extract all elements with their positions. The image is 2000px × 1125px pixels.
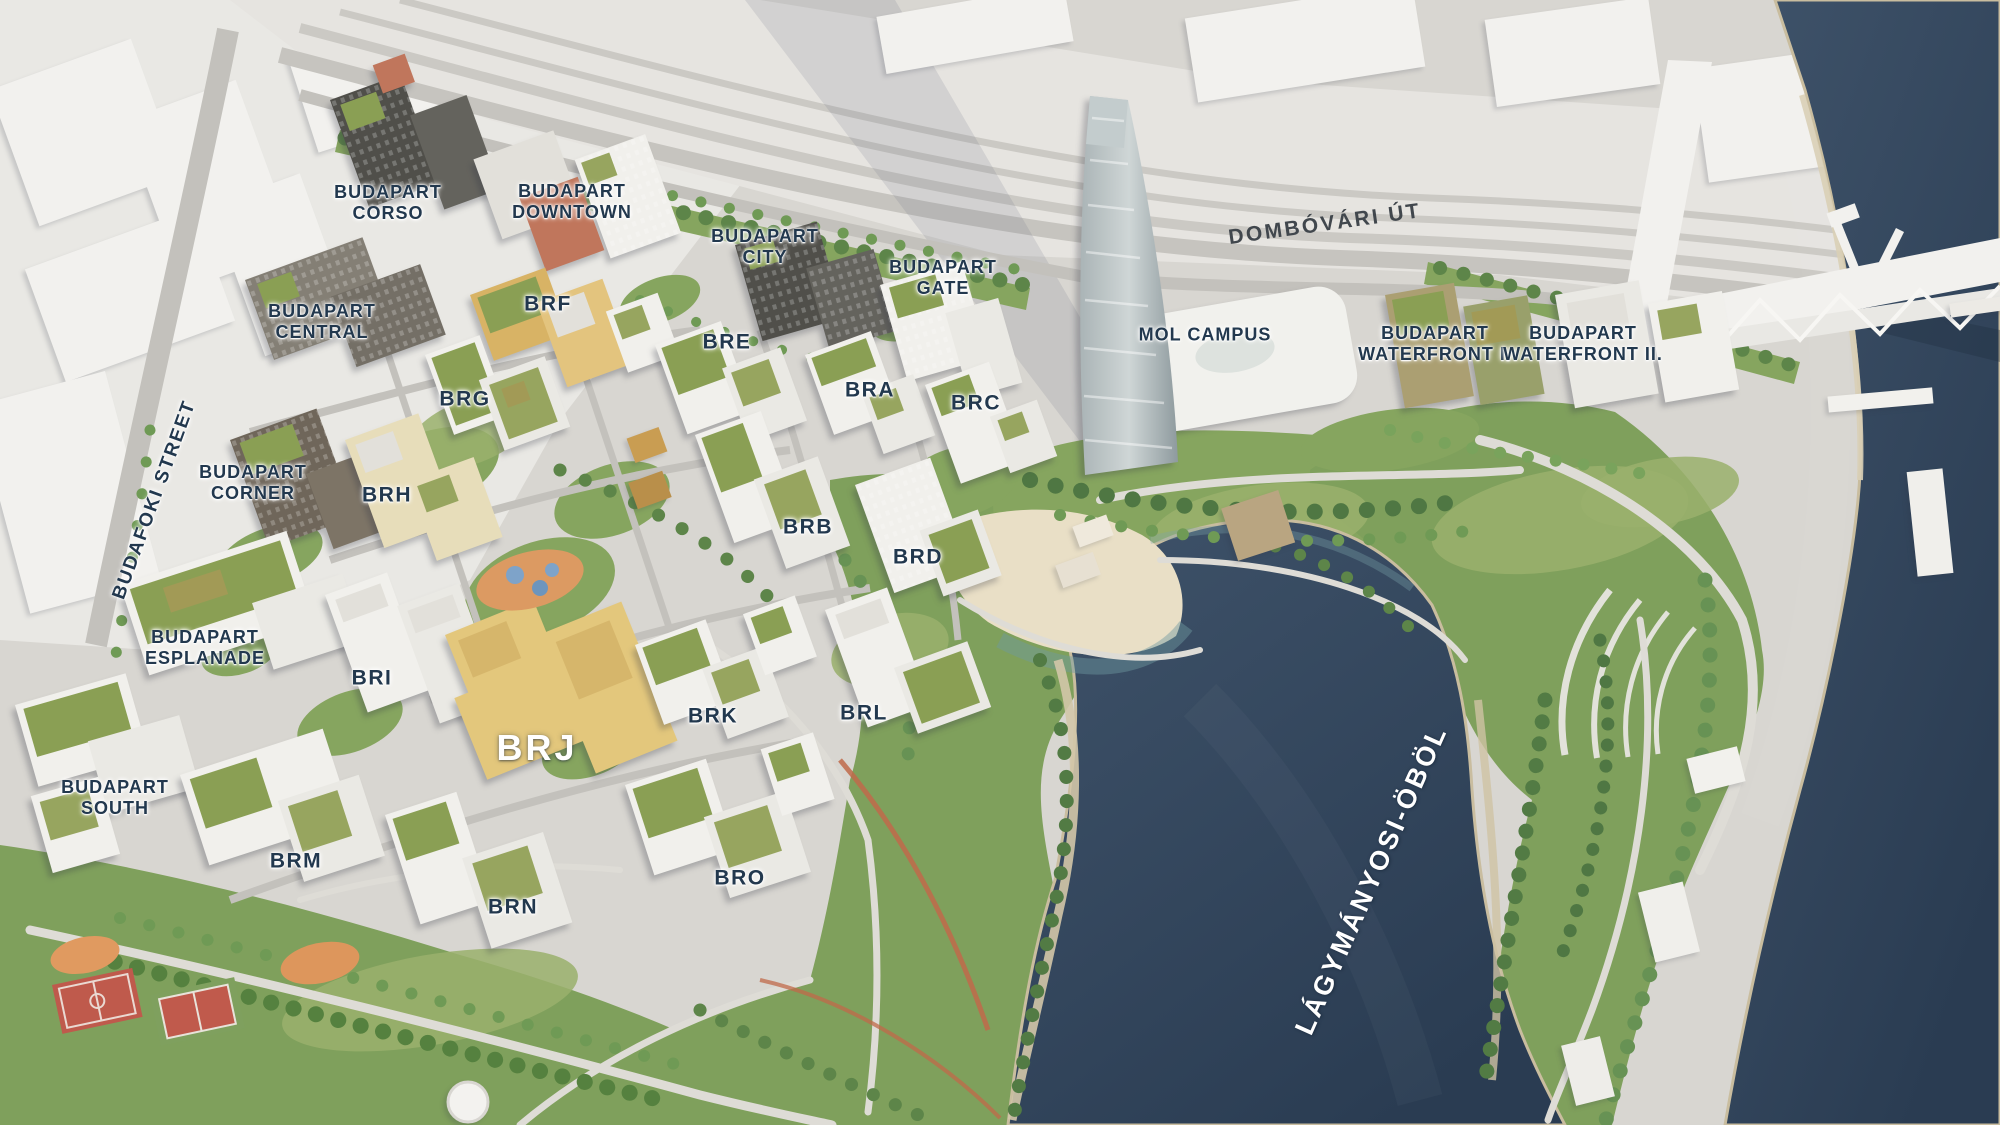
label-budapart-south[interactable]: BUDAPART SOUTH bbox=[61, 777, 169, 819]
label-budapart-downtown[interactable]: BUDAPART DOWNTOWN bbox=[512, 181, 632, 223]
label-brb[interactable]: BRB bbox=[783, 516, 833, 541]
label-mol-campus: MOL CAMPUS bbox=[1139, 324, 1272, 345]
label-brk[interactable]: BRK bbox=[688, 705, 738, 730]
label-brc[interactable]: BRC bbox=[951, 392, 1001, 417]
label-budapart-corso[interactable]: BUDAPART CORSO bbox=[334, 182, 442, 224]
label-brg[interactable]: BRG bbox=[439, 388, 490, 413]
label-budapart-corner[interactable]: BUDAPART CORNER bbox=[199, 462, 307, 504]
label-brf[interactable]: BRF bbox=[524, 293, 572, 318]
label-bre[interactable]: BRE bbox=[703, 331, 752, 356]
label-bro[interactable]: BRO bbox=[714, 867, 765, 892]
label-budapart-waterfront-1[interactable]: BUDAPART WATERFRONT I. bbox=[1358, 323, 1512, 365]
label-brh[interactable]: BRH bbox=[362, 484, 412, 509]
map-render bbox=[0, 0, 2000, 1125]
label-brl[interactable]: BRL bbox=[840, 702, 888, 727]
label-budapart-waterfront-2[interactable]: BUDAPART WATERFRONT II. bbox=[1503, 323, 1663, 365]
label-budapart-city[interactable]: BUDAPART CITY bbox=[711, 226, 819, 268]
masterplan-map: BUDAPART CORSO BUDAPART DOWNTOWN BUDAPAR… bbox=[0, 0, 2000, 1125]
label-brd[interactable]: BRD bbox=[893, 546, 943, 571]
label-brn[interactable]: BRN bbox=[488, 896, 538, 921]
label-budapart-esplanade[interactable]: BUDAPART ESPLANADE bbox=[145, 627, 265, 669]
label-bri[interactable]: BRI bbox=[352, 667, 393, 692]
chimney bbox=[448, 1082, 488, 1122]
label-bra[interactable]: BRA bbox=[845, 379, 895, 404]
label-brj-highlighted[interactable]: BRJ bbox=[496, 727, 577, 769]
label-brm[interactable]: BRM bbox=[270, 850, 322, 875]
label-budapart-gate[interactable]: BUDAPART GATE bbox=[889, 257, 997, 299]
label-budapart-central[interactable]: BUDAPART CENTRAL bbox=[268, 301, 376, 343]
